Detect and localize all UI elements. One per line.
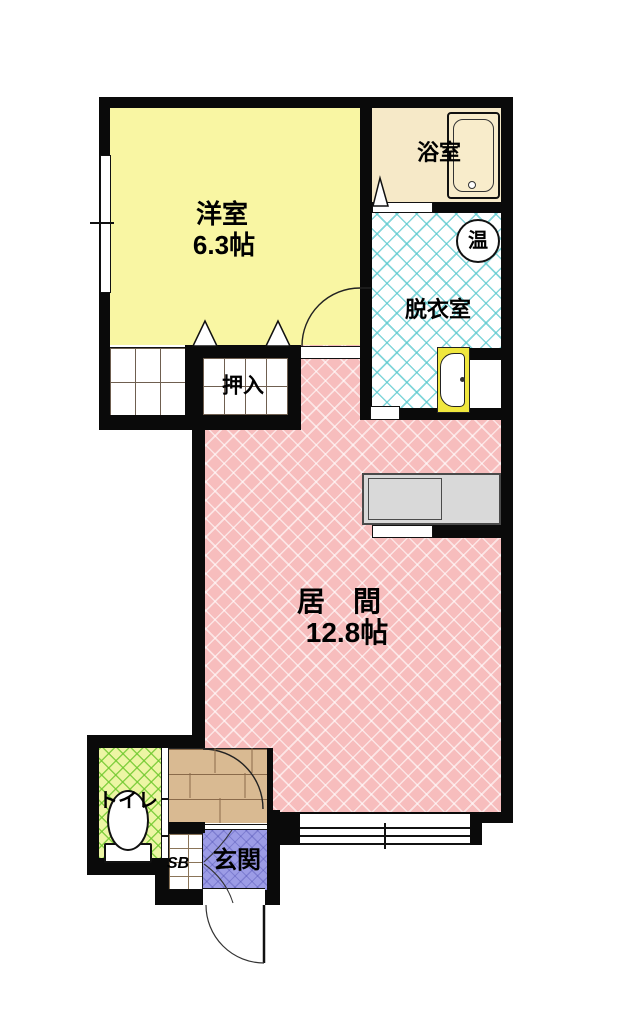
water-heater-label: 温 — [468, 231, 488, 251]
water-heater-circle: 温 — [456, 219, 500, 263]
closet-left-floor — [110, 347, 185, 415]
wall-living-bottom-left — [280, 813, 300, 845]
wall-top — [99, 97, 513, 108]
front-door-arc — [206, 905, 264, 963]
western-room-label: 洋室 — [196, 201, 248, 227]
dressing-room-label: 脱衣室 — [405, 299, 471, 321]
wash-basin-faucet-dot — [460, 377, 465, 382]
bath-room-label: 浴室 — [417, 142, 461, 164]
floor-plan: 温 洋室 6.3帖 浴室 脱衣室 押入 居 間 12.8帖 トイレ SB 玄関 — [0, 0, 617, 1024]
entrance-inner-threshold — [205, 824, 267, 830]
wall-right — [501, 108, 513, 823]
toilet-door — [161, 748, 169, 858]
toilet-label: トイレ — [98, 791, 158, 811]
western-door-threshold — [301, 346, 360, 359]
wall-living-bottom-line — [280, 812, 501, 814]
wall-bath-divider — [433, 202, 513, 213]
hallway-wood-floor — [169, 748, 267, 823]
wall-living-bottom-right — [470, 812, 513, 823]
wall-wood-sb-divider — [168, 822, 205, 833]
bathtub-drain — [468, 181, 476, 189]
wall-kitchen-bar — [433, 525, 513, 538]
toilet-door-tick-bottom — [161, 835, 169, 837]
living-room-size: 12.8帖 — [306, 619, 389, 647]
western-room-size: 6.3帖 — [193, 232, 255, 258]
wall-living-bottom-stub — [470, 823, 482, 845]
entrance-label: 玄関 — [213, 849, 261, 873]
living-room-label: 居 間 — [297, 588, 381, 616]
wall-closets-bottom — [99, 415, 301, 430]
front-door-opening — [203, 888, 265, 905]
window-left-tick — [90, 222, 114, 224]
window-living-south-tick — [384, 823, 386, 849]
shoe-box-label: SB — [167, 856, 189, 872]
wall-living-left — [192, 430, 205, 748]
wall-notch-top — [470, 348, 513, 360]
window-left — [100, 155, 111, 293]
wall-western-right — [360, 108, 372, 420]
bath-door-threshold — [372, 202, 433, 213]
service-niche — [470, 360, 501, 408]
kitchen-sink — [368, 478, 442, 520]
toilet-door-tick-top — [161, 798, 169, 800]
wall-block-top — [87, 735, 195, 748]
wall-entrance-right-thin — [267, 748, 273, 810]
dressing-door-threshold — [370, 406, 400, 420]
window-kitchen — [372, 525, 433, 538]
oshiire-label: 押入 — [222, 376, 264, 397]
